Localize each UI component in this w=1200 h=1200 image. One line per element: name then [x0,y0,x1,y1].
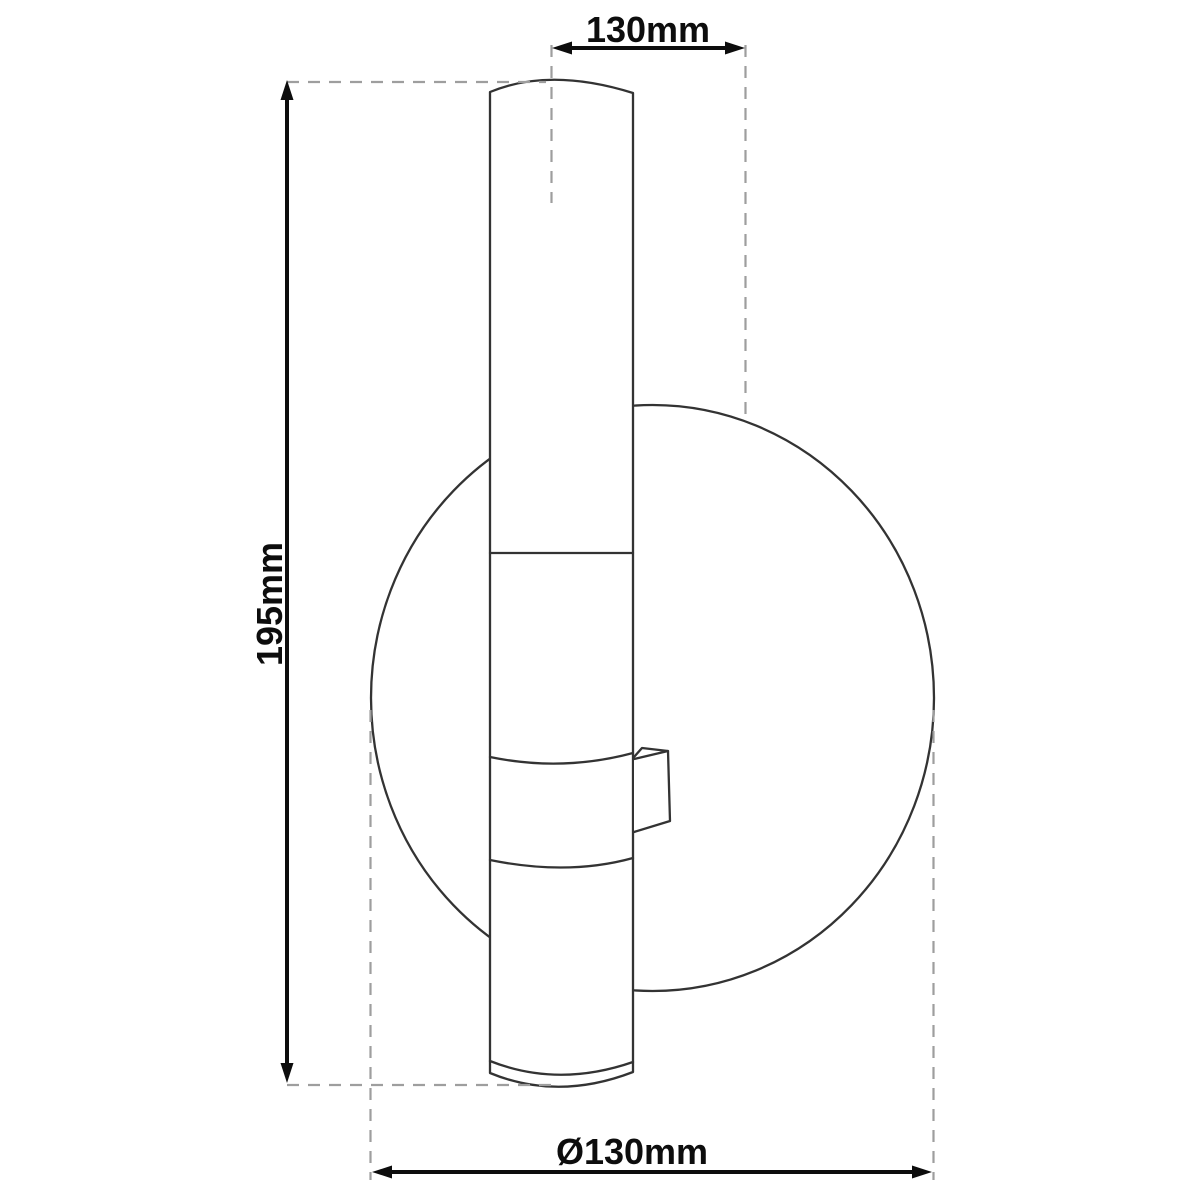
dimension-drawing-page: 130mm 195mm Ø130mm [0,0,1200,1200]
wall-lamp-dimension-drawing: 130mm 195mm Ø130mm [0,0,1200,1200]
mounting-bracket-face [634,751,670,832]
wall-plate-outline [371,405,934,991]
dimension-label-bottom-diameter: Ø130mm [556,1131,708,1172]
dimension-label-top-width: 130mm [586,9,710,50]
dimension-label-left-height: 195mm [249,542,290,666]
lamp-tube-body [490,80,633,1087]
